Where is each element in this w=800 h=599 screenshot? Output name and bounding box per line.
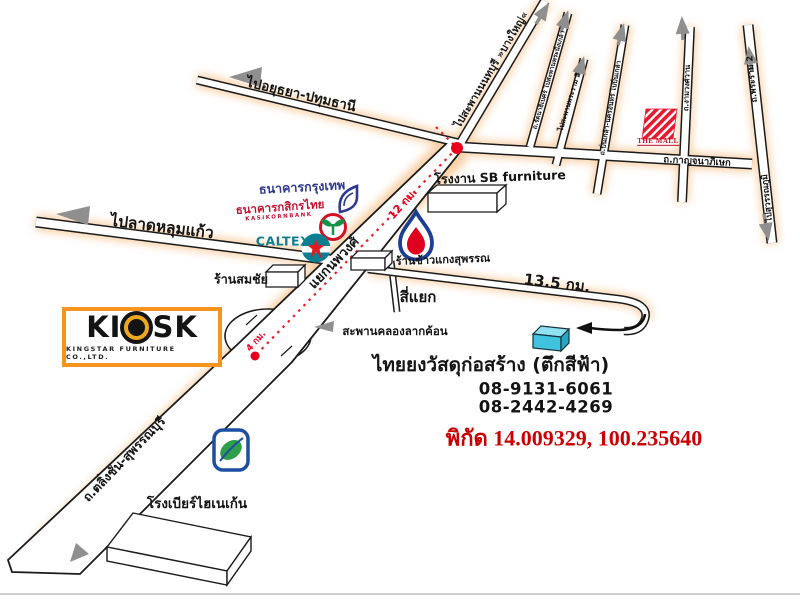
kiosk-word-left: KI <box>86 313 121 342</box>
road-label-ngamwongwan: ถ.งามวงศ์วาน <box>682 65 691 112</box>
somchai-shop-label: ร้านสมชัย <box>214 272 268 285</box>
destination-coordinates: พิกัด 14.009329, 100.235640 <box>446 426 703 449</box>
sb-factory-building <box>428 185 506 212</box>
somchai-shop-building <box>266 265 305 287</box>
heineken-brewery-label: โรงเบียร์ไฮเนเก้น <box>147 497 247 511</box>
destination-name: ไทยยงวัสดุก่อสร้าง (ตึกสีฟ้า) <box>373 356 609 376</box>
image-bottom-border <box>0 593 800 595</box>
kiosk-bullseye-icon <box>124 315 149 340</box>
kiosk-word-right: SK <box>152 313 197 342</box>
caltex-label: CALTEX <box>256 234 310 247</box>
destination-building-blue <box>533 326 569 351</box>
kasikornbank-icon <box>321 215 346 240</box>
kiosk-wordmark: KI SK <box>86 313 198 342</box>
map-canvas: ไปอยุธยา-ปทุมธานี ไปสะพานนนทบุรี »บางใหญ… <box>0 0 800 599</box>
destination-phone-2: 08-2442-4269 <box>479 398 614 415</box>
intersection-dot <box>451 142 463 154</box>
kiosk-subtitle: KINGSTAR FURNITURE CO.,LTD. <box>66 345 218 361</box>
kiosk-logo: KI SK KINGSTAR FURNITURE CO.,LTD. <box>62 307 222 367</box>
heineken-leaf-icon <box>212 427 250 477</box>
rice-shop-building <box>351 251 392 270</box>
destination-phone-1: 08-9131-6061 <box>479 380 614 397</box>
the-mall-label: THE MALL <box>637 138 679 146</box>
heineken-brewery-building <box>107 513 251 585</box>
junction-label-siyaek: สี่แยก <box>400 290 437 306</box>
the-mall-logo <box>642 109 677 139</box>
bridge-label: สะพานคลองลากค้อน <box>342 325 447 337</box>
arrow-ngamwongwan <box>682 20 683 40</box>
